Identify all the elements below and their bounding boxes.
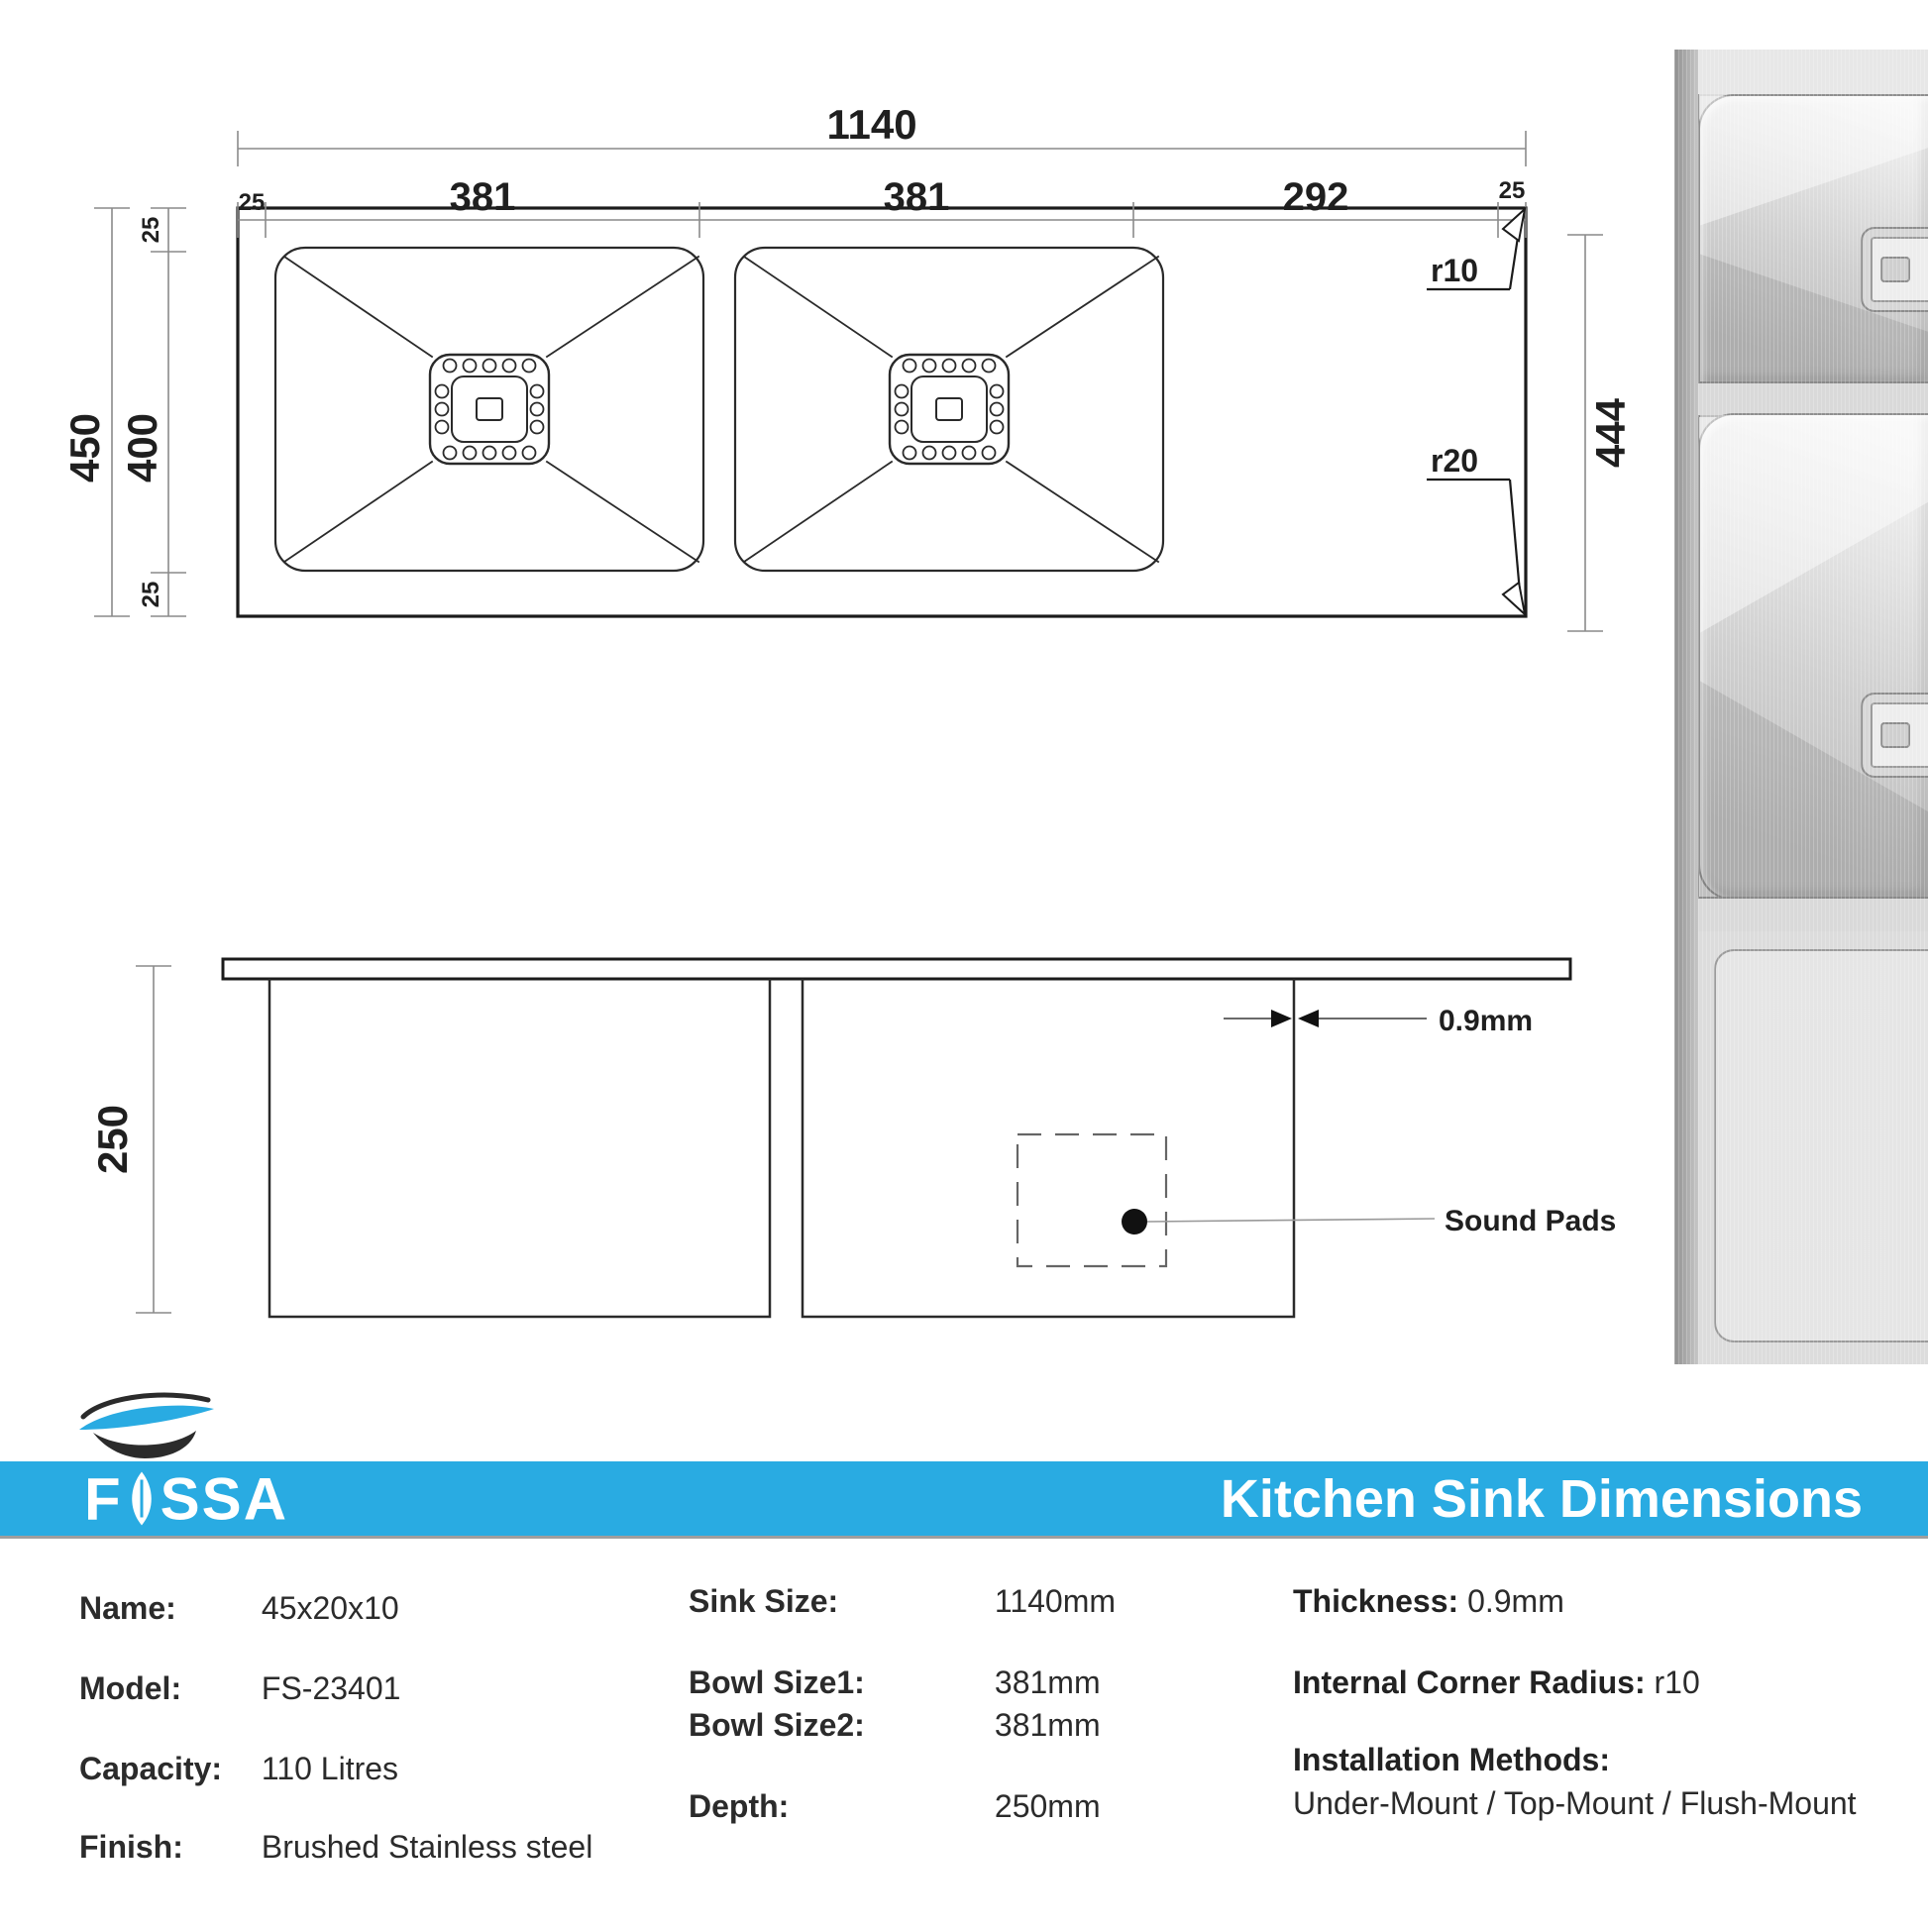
- spec-row-thickness: Thickness: 0.9mm: [1293, 1583, 1564, 1620]
- spec-label: Thickness:: [1293, 1583, 1458, 1619]
- sound-pad-dot: [1122, 1209, 1147, 1234]
- dim-top-margin: 25: [138, 217, 164, 244]
- spec-row-sink-size: Sink Size: 1140mm: [689, 1583, 1116, 1620]
- header-bar: F SSA Kitchen Sink Dimensions: [0, 1461, 1928, 1539]
- spec-row-name: Name: 45x20x10: [79, 1590, 399, 1627]
- spec-value: r10: [1646, 1664, 1700, 1700]
- dim-right-margin: 25: [1499, 177, 1526, 204]
- leaf-icon: [126, 1470, 158, 1528]
- spec-row-corner-radius: Internal Corner Radius: r10: [1293, 1664, 1700, 1701]
- logo-bowl: [93, 1431, 196, 1458]
- dim-overall-width: 1140: [826, 101, 916, 148]
- dim-bottom-margin: 25: [138, 582, 164, 608]
- dim-bowl1-width: 381: [450, 175, 516, 219]
- spec-row-bowl-size1: Bowl Size1: 381mm: [689, 1664, 1101, 1701]
- dim-depth: 250: [89, 1105, 136, 1174]
- spec-row-finish: Finish: Brushed Stainless steel: [79, 1829, 592, 1866]
- spec-row-capacity: Capacity: 110 Litres: [79, 1751, 398, 1787]
- spec-label: Sink Size:: [689, 1583, 986, 1620]
- dim-right-section: 292: [1283, 175, 1349, 219]
- spec-row-depth: Depth: 250mm: [689, 1788, 1101, 1825]
- fossa-wordmark: F SSA: [84, 1464, 288, 1533]
- svg-text:r20: r20: [1431, 443, 1478, 479]
- dim-overall-height: 450: [61, 413, 108, 483]
- spec-row-install-value: Under-Mount / Top-Mount / Flush-Mount: [1293, 1785, 1857, 1822]
- spec-value: Under-Mount / Top-Mount / Flush-Mount: [1293, 1785, 1857, 1821]
- depth-dimension: [136, 966, 171, 1313]
- spec-value: 45x20x10: [262, 1590, 399, 1626]
- spec-label: Depth:: [689, 1788, 986, 1825]
- spec-row-model: Model: FS-23401: [79, 1670, 400, 1707]
- bowl1-profile: [269, 979, 770, 1317]
- spec-value: 0.9mm: [1458, 1583, 1564, 1619]
- thickness-label: 0.9mm: [1439, 1005, 1533, 1037]
- spec-sheet: 1140 25 381 381 292 25 450 400 25 25 444…: [0, 0, 1928, 1932]
- sound-pads-callout: Sound Pads: [1018, 1134, 1616, 1266]
- header-title: Kitchen Sink Dimensions: [1221, 1468, 1863, 1530]
- photo-brushed-texture: [1674, 50, 1928, 1364]
- spec-value: 381mm: [995, 1707, 1101, 1743]
- dim-inner-height: 400: [119, 413, 165, 483]
- spec-row-install-label: Installation Methods:: [1293, 1742, 1610, 1778]
- fossa-logo-icon: [69, 1387, 228, 1460]
- svg-text:r10: r10: [1431, 253, 1478, 288]
- spec-value: Brushed Stainless steel: [262, 1829, 592, 1865]
- spec-value: 1140mm: [995, 1583, 1116, 1619]
- spec-value: FS-23401: [262, 1670, 401, 1706]
- spec-value: 381mm: [995, 1664, 1101, 1700]
- product-photo: [1674, 50, 1928, 1364]
- spec-label: Internal Corner Radius:: [1293, 1664, 1646, 1700]
- dim-right-height: 444: [1587, 397, 1634, 468]
- spec-label: Installation Methods:: [1293, 1742, 1610, 1777]
- spec-label: Finish:: [79, 1829, 253, 1866]
- wordmark-ssa: SSA: [161, 1464, 288, 1533]
- dim-bowl2-width: 381: [884, 175, 950, 219]
- spec-label: Name:: [79, 1590, 253, 1627]
- sound-pads-label: Sound Pads: [1445, 1205, 1616, 1237]
- thickness-callout: 0.9mm: [1224, 1005, 1533, 1037]
- spec-label: Model:: [79, 1670, 253, 1707]
- wordmark-f: F: [84, 1464, 123, 1533]
- logo-water-swoosh: [79, 1406, 214, 1430]
- top-view: [238, 208, 1526, 616]
- dim-left-margin: 25: [239, 189, 266, 216]
- technical-drawing: 1140 25 381 381 292 25 450 400 25 25 444…: [0, 0, 1664, 1387]
- spec-value: 250mm: [995, 1788, 1101, 1824]
- spec-label: Capacity:: [79, 1751, 253, 1787]
- rim-profile: [223, 959, 1570, 979]
- left-dimensions: [94, 208, 186, 616]
- spec-label: Bowl Size1:: [689, 1664, 986, 1701]
- side-view: 250 0.9mm Sound Pads: [89, 959, 1616, 1317]
- spec-value: 110 Litres: [262, 1751, 398, 1786]
- spec-label: Bowl Size2:: [689, 1707, 986, 1744]
- spec-row-bowl-size2: Bowl Size2: 381mm: [689, 1707, 1101, 1744]
